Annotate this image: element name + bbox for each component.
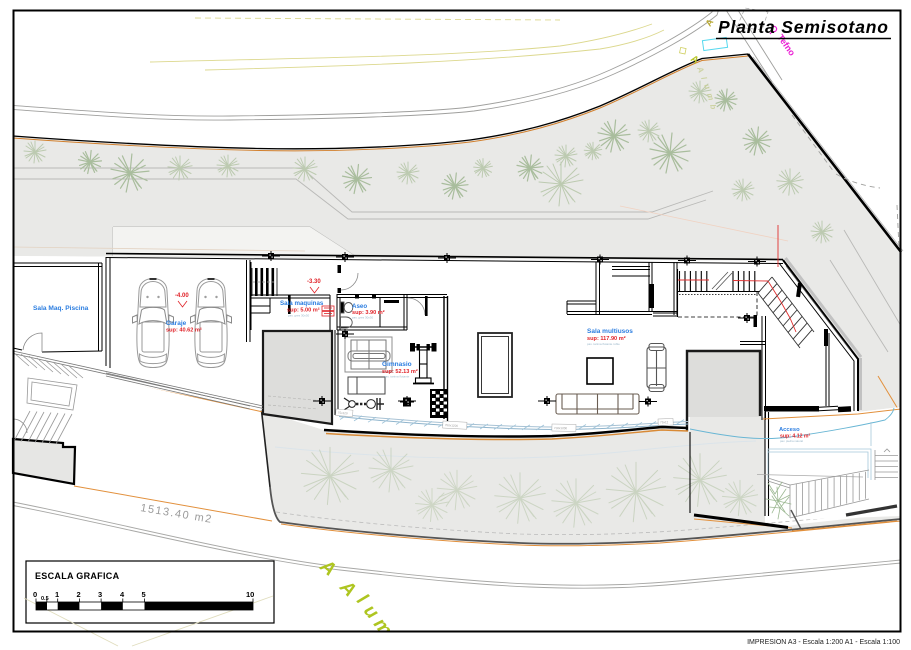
svg-text:pav. tarima flotante: pav. tarima flotante <box>384 375 410 379</box>
svg-text:Sala multiusos: Sala multiusos <box>587 328 633 335</box>
svg-text:750x1200: 750x1200 <box>554 426 568 430</box>
svg-text:75x120: 75x120 <box>338 411 348 416</box>
svg-text:Gimnasio: Gimnasio <box>382 361 412 368</box>
svg-text:Acceso: Acceso <box>779 427 800 433</box>
svg-text:750x1200: 750x1200 <box>445 423 459 428</box>
svg-text:sup: 117.90 m²: sup: 117.90 m² <box>587 335 626 342</box>
svg-text:IMPRESION A3 - Escala 1:200 A: IMPRESION A3 - Escala 1:200 A1 - Escala … <box>747 639 900 646</box>
svg-text:ESCALA GRAFICA: ESCALA GRAFICA <box>35 571 120 581</box>
svg-text:-4.00: -4.00 <box>175 293 189 299</box>
svg-text:Planta Semisotano: Planta Semisotano <box>718 17 888 37</box>
svg-text:pav. gres 30x30: pav. gres 30x30 <box>288 314 309 318</box>
svg-text:5: 5 <box>142 590 146 599</box>
svg-text:sup: 5.00 m²: sup: 5.00 m² <box>287 307 320 314</box>
svg-text:0: 0 <box>33 590 37 599</box>
svg-text:75x12: 75x12 <box>660 420 669 424</box>
svg-text:0.5: 0.5 <box>41 596 49 602</box>
svg-text:1: 1 <box>55 590 59 599</box>
svg-text:10: 10 <box>246 590 254 599</box>
svg-text:pav. piedra natural: pav. piedra natural <box>780 439 803 443</box>
svg-text:Sala maquinas: Sala maquinas <box>280 300 324 307</box>
svg-text:-3.30: -3.30 <box>307 279 321 285</box>
svg-text:sup: 40.62 m²: sup: 40.62 m² <box>166 327 202 334</box>
svg-text:pav. gres 30x30: pav. gres 30x30 <box>352 316 373 320</box>
svg-text:3: 3 <box>98 590 102 599</box>
svg-text:pav. tarima flotante roble: pav. tarima flotante roble <box>587 342 620 346</box>
svg-text:2: 2 <box>77 590 81 599</box>
svg-text:Aseo: Aseo <box>352 303 367 310</box>
svg-text:Sala Maq. Piscina: Sala Maq. Piscina <box>33 305 89 312</box>
svg-text:Garaje: Garaje <box>166 320 187 327</box>
